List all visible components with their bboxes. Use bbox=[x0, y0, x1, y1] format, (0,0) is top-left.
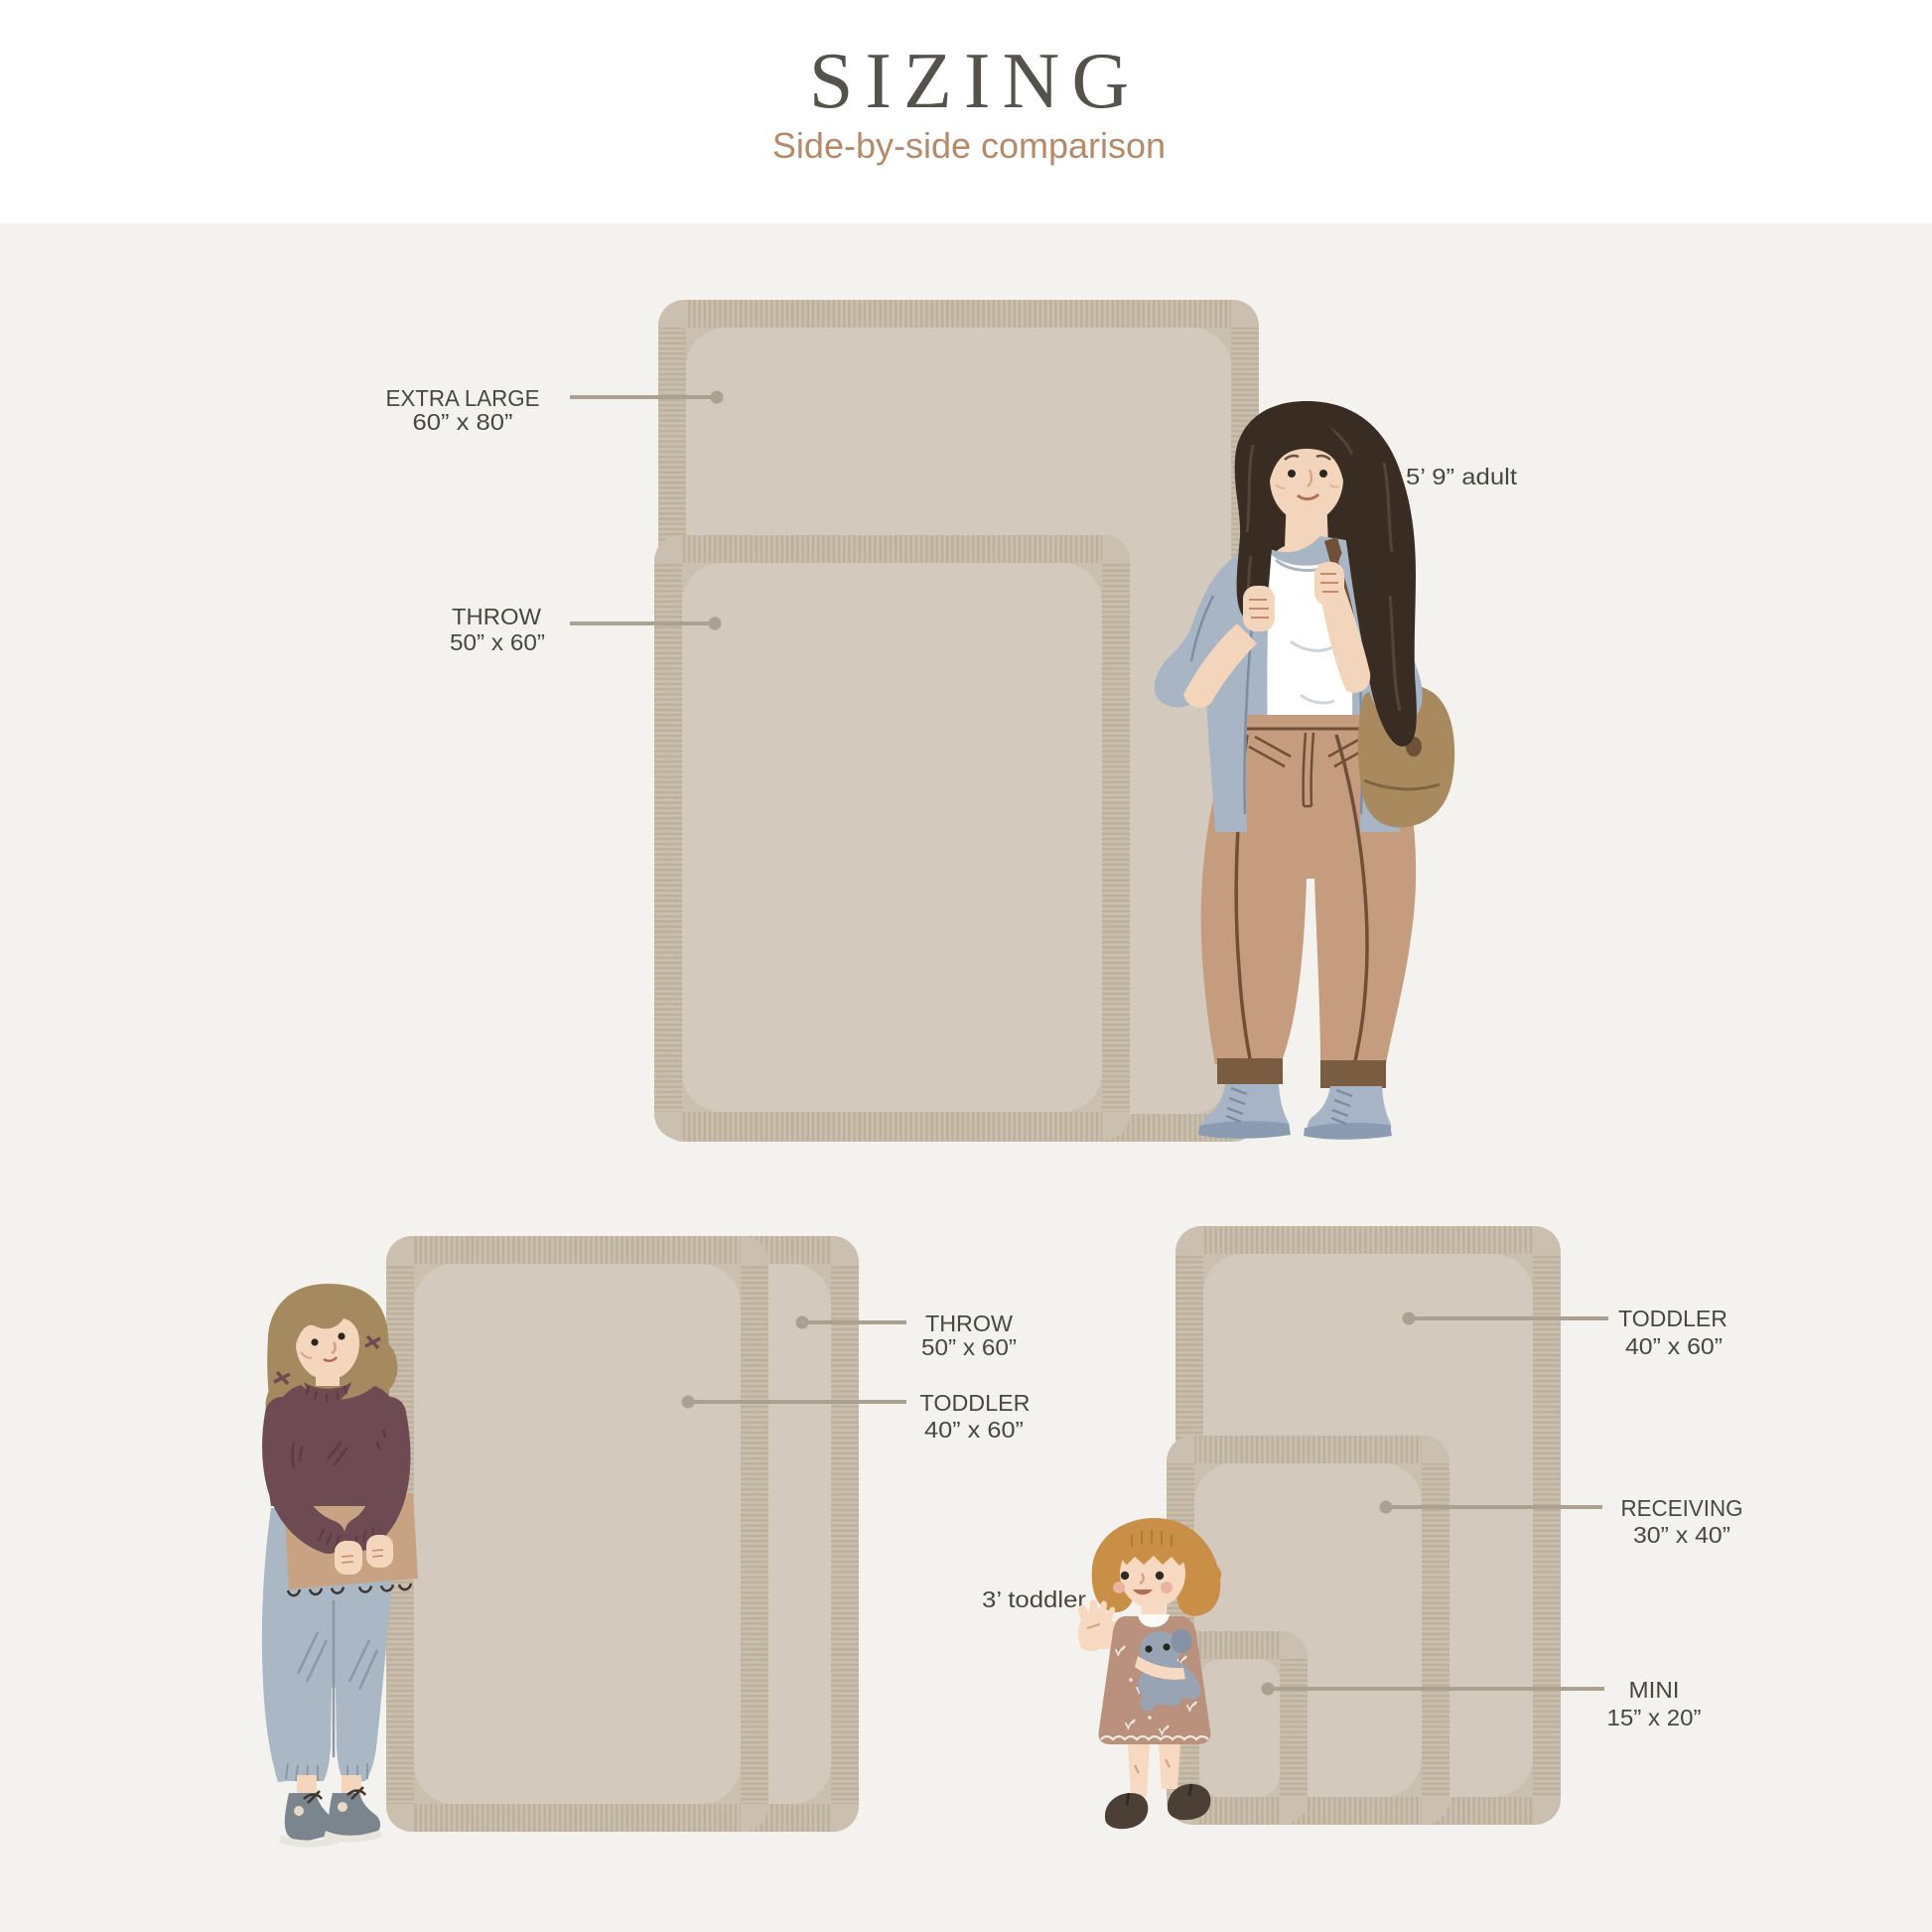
svg-text:THROW: THROW bbox=[925, 1311, 1013, 1336]
svg-text:TODDLER: TODDLER bbox=[920, 1390, 1031, 1416]
svg-text:THROW: THROW bbox=[452, 604, 541, 629]
svg-text:15” x 20”: 15” x 20” bbox=[1607, 1705, 1702, 1730]
svg-text:50” x 60”: 50” x 60” bbox=[921, 1334, 1017, 1360]
svg-text:5’ 9” adult: 5’ 9” adult bbox=[1406, 464, 1518, 489]
svg-text:Side-by-side comparison: Side-by-side comparison bbox=[772, 125, 1166, 166]
svg-text:TODDLER: TODDLER bbox=[1618, 1306, 1727, 1331]
svg-text:MINI: MINI bbox=[1629, 1677, 1680, 1703]
svg-text:RECEIVING: RECEIVING bbox=[1621, 1495, 1743, 1521]
svg-text:EXTRA LARGE: EXTRA LARGE bbox=[386, 385, 540, 411]
svg-text:SIZING: SIZING bbox=[809, 38, 1141, 125]
svg-text:50” x 60”: 50” x 60” bbox=[450, 629, 545, 655]
svg-text:40” x 60”: 40” x 60” bbox=[1625, 1333, 1723, 1359]
svg-text:30” x 40”: 30” x 40” bbox=[1633, 1522, 1730, 1548]
svg-text:3’ toddler: 3’ toddler bbox=[982, 1587, 1086, 1612]
svg-text:60” x 80”: 60” x 80” bbox=[413, 409, 513, 435]
svg-text:40” x 60”: 40” x 60” bbox=[924, 1417, 1024, 1443]
